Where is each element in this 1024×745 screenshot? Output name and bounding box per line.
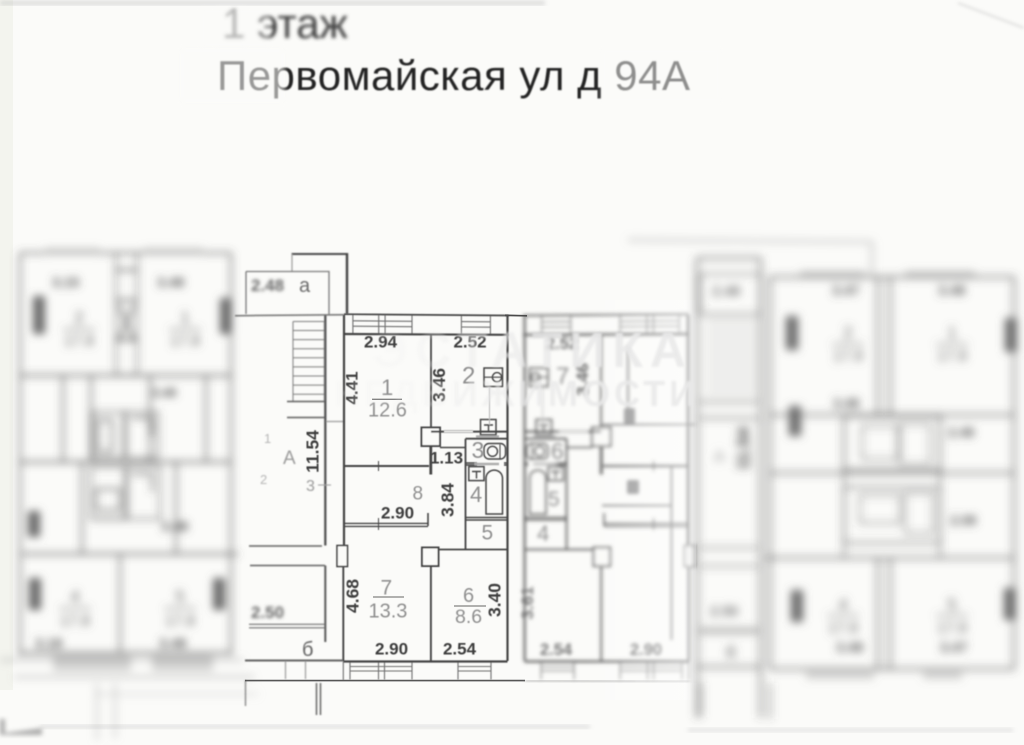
svg-text:2.54: 2.54: [443, 640, 477, 659]
svg-text:3.48: 3.48: [159, 635, 186, 651]
svg-text:3.48: 3.48: [161, 518, 188, 534]
svg-text:2.90: 2.90: [375, 640, 408, 659]
svg-text:13.3: 13.3: [369, 601, 408, 623]
svg-text:5: 5: [947, 595, 956, 614]
svg-text:2.50: 2.50: [251, 603, 284, 622]
svg-text:17.8: 17.8: [828, 620, 858, 637]
svg-text:1: 1: [947, 323, 956, 342]
svg-text:5: 5: [175, 587, 184, 606]
svg-text:3.40: 3.40: [485, 583, 505, 617]
svg-text:2.48: 2.48: [948, 425, 975, 440]
svg-text:б: б: [726, 643, 736, 662]
svg-text:4.68: 4.68: [343, 579, 363, 613]
svg-text:17.8: 17.8: [937, 348, 967, 365]
svg-text:2: 2: [74, 308, 83, 327]
svg-text:3.15: 3.15: [52, 274, 79, 290]
svg-text:3.48: 3.48: [938, 282, 965, 298]
svg-text:ЭСТАТИКА: ЭСТАТИКА: [372, 322, 693, 378]
svg-text:1.13: 1.13: [430, 449, 463, 468]
svg-text:3.18: 3.18: [35, 635, 62, 651]
svg-text:3.84: 3.84: [438, 483, 458, 517]
svg-text:17.8: 17.8: [170, 333, 200, 350]
svg-text:17.8: 17.8: [833, 348, 863, 365]
svg-text:2.48: 2.48: [251, 276, 284, 295]
svg-text:17.8: 17.8: [165, 613, 195, 630]
svg-text:8.6: 8.6: [455, 606, 482, 628]
svg-text:17.8: 17.8: [937, 620, 967, 637]
svg-text:4: 4: [470, 482, 482, 507]
svg-text:А: А: [283, 448, 296, 469]
svg-text:а: а: [299, 275, 311, 297]
svg-text:2.08: 2.08: [950, 513, 977, 528]
svg-text:А: А: [714, 449, 725, 466]
svg-text:4: 4: [70, 587, 79, 606]
svg-text:6: 6: [463, 585, 474, 607]
svg-text:2.50: 2.50: [710, 604, 738, 620]
svg-text:2: 2: [843, 323, 852, 342]
svg-text:17.8: 17.8: [60, 613, 90, 630]
svg-text:1: 1: [180, 308, 189, 327]
svg-text:3: 3: [472, 437, 485, 463]
svg-text:3.48: 3.48: [836, 639, 863, 655]
svg-text:НЕДВИЖИМОСТИ: НЕДВИЖИМОСТИ: [334, 373, 699, 414]
svg-text:3.47: 3.47: [832, 282, 859, 298]
svg-text:3.48: 3.48: [157, 274, 184, 290]
svg-text:8: 8: [413, 484, 424, 505]
svg-text:11.54: 11.54: [303, 430, 323, 473]
svg-text:5: 5: [482, 522, 494, 545]
svg-text:4: 4: [838, 595, 847, 614]
svg-text:2.48: 2.48: [712, 284, 740, 300]
svg-text:11.54: 11.54: [733, 427, 753, 470]
svg-text:3: 3: [306, 478, 315, 495]
svg-text:7: 7: [381, 577, 393, 600]
svg-text:2.90: 2.90: [381, 504, 414, 523]
svg-text:3.48: 3.48: [152, 386, 176, 400]
svg-text:2: 2: [260, 472, 267, 487]
svg-text:3.47: 3.47: [940, 639, 967, 655]
svg-text:3.48: 3.48: [833, 396, 860, 411]
svg-text:б: б: [302, 639, 313, 661]
svg-text:1: 1: [264, 431, 271, 446]
svg-text:17.8: 17.8: [64, 333, 94, 350]
